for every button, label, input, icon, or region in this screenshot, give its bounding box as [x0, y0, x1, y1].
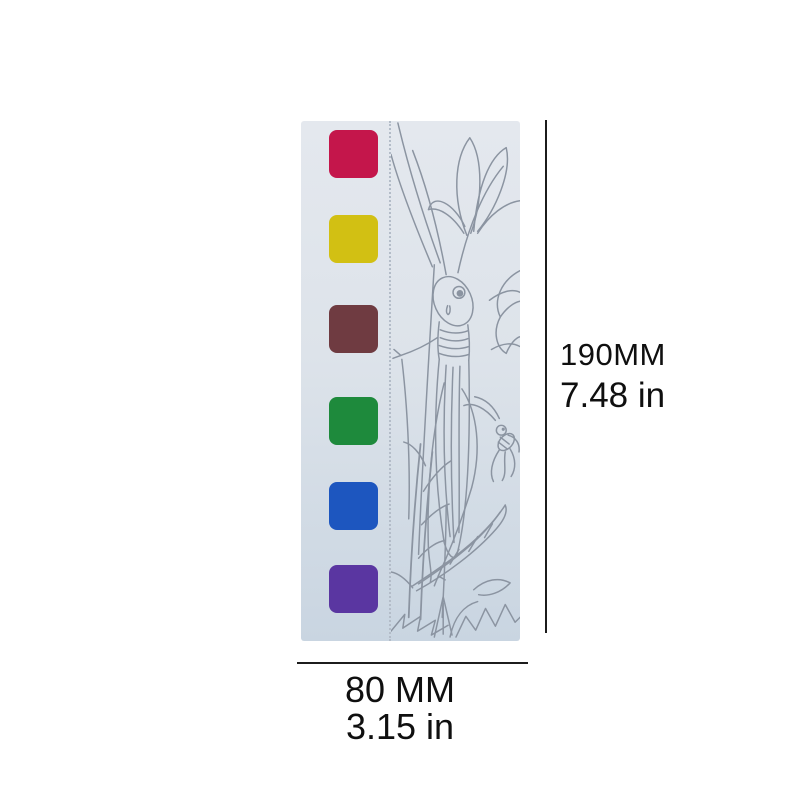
paint-swatch-strip [301, 121, 389, 641]
width-label-metric: 80 MM [290, 672, 510, 708]
product-card [301, 121, 520, 641]
height-label-imperial: 7.48 in [560, 377, 740, 416]
paint-swatch-crimson [329, 130, 378, 178]
height-dimension-line [545, 120, 547, 633]
paint-swatch-blue [329, 482, 378, 530]
grasshopper-line-art [391, 121, 520, 641]
paint-swatch-purple [329, 565, 378, 613]
paint-swatch-brown [329, 305, 378, 353]
paint-swatch-green [329, 397, 378, 445]
product-dimension-diagram: 190MM 7.48 in 80 MM 3.15 in [0, 0, 800, 800]
paint-swatch-yellow [329, 215, 378, 263]
height-dimension-labels: 190MM 7.48 in [560, 338, 740, 416]
width-label-imperial: 3.15 in [290, 709, 510, 745]
coloring-area [389, 121, 520, 641]
width-dimension-line [297, 662, 528, 664]
height-label-metric: 190MM [560, 338, 740, 372]
width-dimension-labels: 80 MM 3.15 in [290, 672, 510, 745]
